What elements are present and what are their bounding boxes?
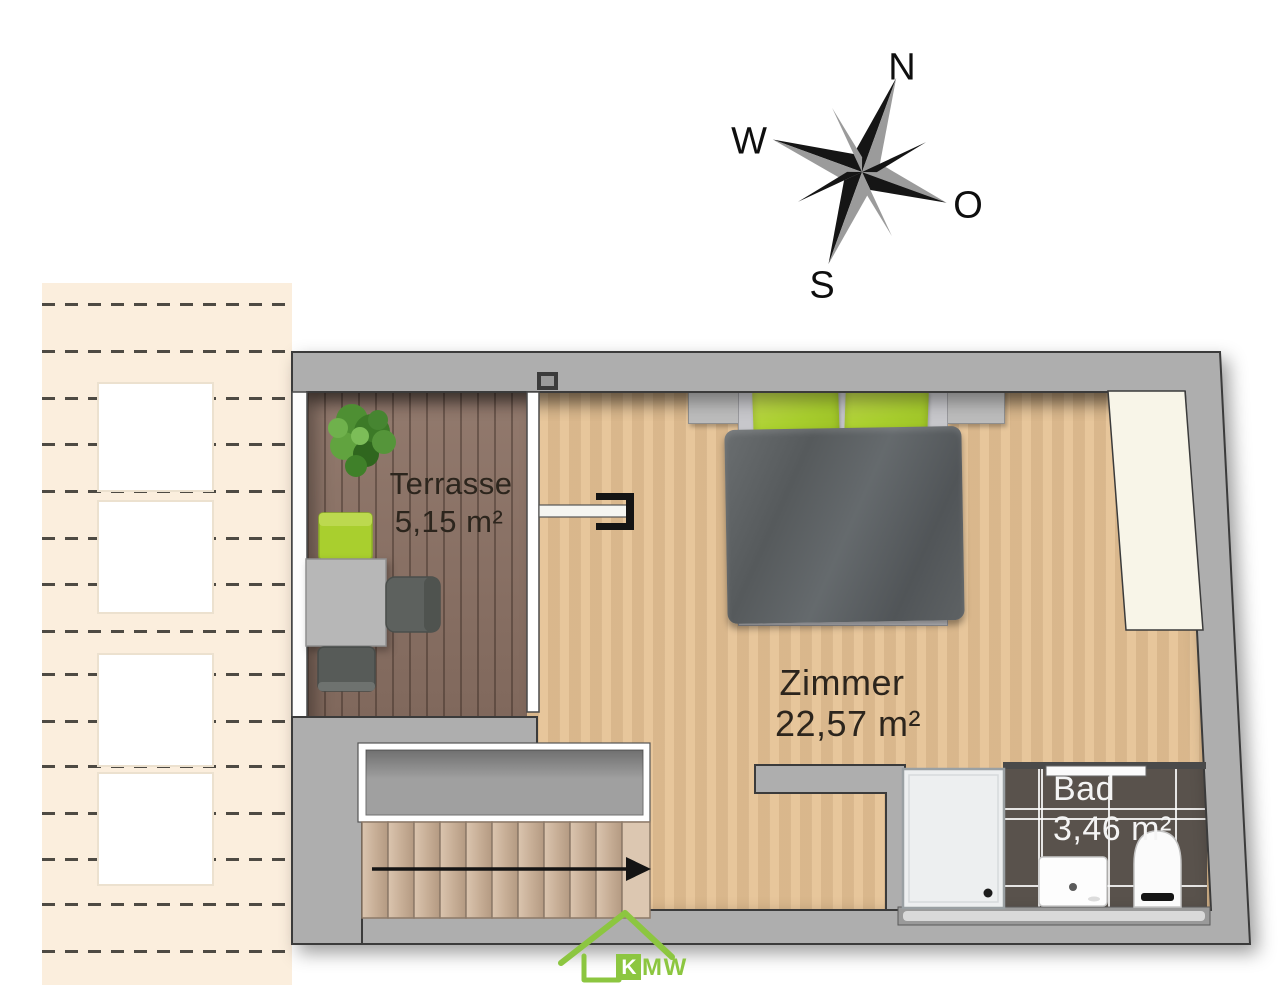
- roof-dash-line: [42, 630, 292, 633]
- nightstand-right: [947, 386, 1005, 424]
- roof-dash-line: [42, 350, 292, 353]
- wall-detail-box-inner: [541, 376, 554, 386]
- zimmer-area: 22,57 m²: [775, 703, 921, 745]
- skylight-window: [97, 653, 214, 767]
- terrasse-area: 5,15 m²: [395, 504, 504, 540]
- bad-label: Bad: [1053, 770, 1115, 809]
- skylight-window: [97, 772, 214, 886]
- compass-south-label: S: [809, 265, 834, 308]
- compass-west-label: W: [731, 121, 767, 164]
- bed-headboard: [738, 374, 946, 383]
- terrasse-label: Terrasse: [390, 466, 513, 502]
- logo-letter-k: K: [621, 956, 636, 980]
- skylight-window: [97, 500, 214, 614]
- roof-dash-line: [42, 303, 292, 306]
- roof-overhang-area: [42, 283, 292, 985]
- roof-dash-line: [42, 950, 292, 953]
- logo-letter-m: M: [642, 954, 662, 982]
- compass-rose: [739, 46, 981, 295]
- terrace-railing: [292, 392, 307, 717]
- floorplan-page: Terrasse 5,15 m² Zimmer 22,57 m² Bad 3,4…: [0, 0, 1280, 1008]
- compass-east-label: O: [953, 185, 983, 228]
- bad-area: 3,46 m²: [1053, 810, 1172, 849]
- logo-letter-w: W: [664, 954, 687, 982]
- bed-duvet: [724, 426, 964, 624]
- skylight-window: [97, 382, 214, 492]
- zimmer-label: Zimmer: [780, 662, 905, 704]
- compass-north-label: N: [888, 47, 915, 90]
- roof-dash-line: [42, 903, 292, 906]
- south-window-glass: [903, 911, 1205, 921]
- nightstand-left: [688, 384, 740, 424]
- wall-detail-box: [537, 372, 558, 390]
- terrace-deck: [307, 392, 527, 717]
